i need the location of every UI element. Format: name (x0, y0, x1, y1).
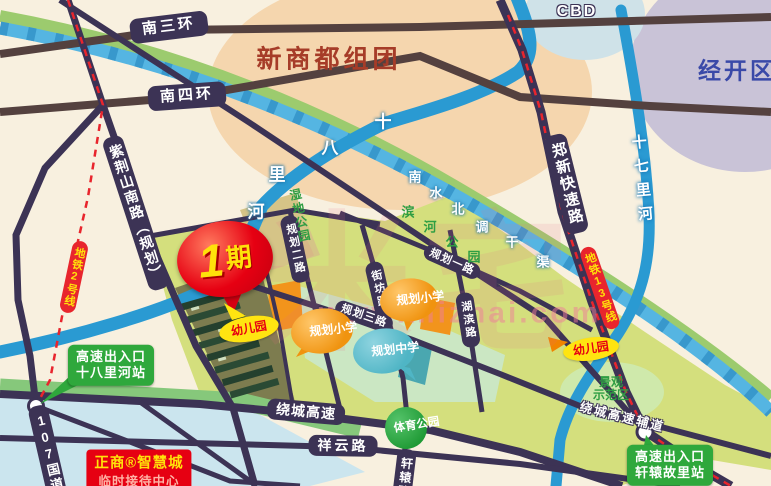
area-jingkai-zone (630, 0, 771, 172)
river-label-shibalihe-char2: 八 (322, 134, 339, 159)
canal-label-char3: 北 (451, 199, 464, 218)
park-label-jingguan: 景观 示范区 (581, 376, 641, 402)
exit-shibalihe-line2: 十八里河站 (76, 365, 146, 381)
park-label-jingguan-line2: 示范区 (581, 389, 641, 402)
canal-label-char1: 南 (408, 167, 421, 186)
river-label-shibalihe-char1: 十 (375, 108, 392, 133)
exit-badge-shibalihe: 高速出入口 十八里河站 (68, 345, 154, 386)
area-label-jingkai: 经开区 (698, 58, 771, 83)
middle-school-label: 规划中学 (371, 343, 397, 359)
exit-shibalihe-line1: 高速出入口 (76, 349, 146, 365)
sales-office-subtitle: 临时接待中心 (94, 473, 183, 486)
primary-school-label-east: 规划小学 (396, 292, 422, 308)
location-map: 米宅 www.mizhai.com 新商都组团 CBD 经开区 南三环 南四环 … (0, 0, 771, 486)
canal-label-char5: 干 (505, 232, 518, 251)
canal-label-char6: 渠 (536, 252, 549, 271)
area-label-cbd: CBD (557, 3, 598, 21)
phase1-number: 1 (196, 234, 227, 287)
park-label-binhe-char1: 滨 (401, 202, 414, 221)
road-label-xiangyun: 祥云路 (308, 435, 377, 458)
sports-park-label: 体育公园 (393, 420, 419, 437)
park-label-binhe-char2: 河 (423, 217, 436, 236)
area-label-xinshangdu: 新商都组团 (256, 46, 401, 74)
canal-label-char4: 调 (475, 217, 488, 236)
exit-badge-xuanyuan: 高速出入口 轩辕故里站 (627, 445, 713, 486)
river-label-shibalihe-char4: 河 (248, 198, 265, 223)
phase1-unit: 期 (224, 242, 253, 273)
park-label-binhe-char4: 园 (467, 247, 480, 266)
primary-school-label-west: 规划小学 (309, 323, 335, 339)
exit-xuanyuan-line1: 高速出入口 (635, 449, 705, 465)
canal-label-char2: 水 (429, 183, 442, 202)
park-label-binhe-char3: 公 (445, 232, 458, 251)
sales-office-badge: 正商®智慧城 临时接待中心 (86, 449, 191, 486)
exit-xuanyuan-line2: 轩辕故里站 (635, 465, 705, 481)
sales-office-name: 正商®智慧城 (94, 454, 183, 473)
